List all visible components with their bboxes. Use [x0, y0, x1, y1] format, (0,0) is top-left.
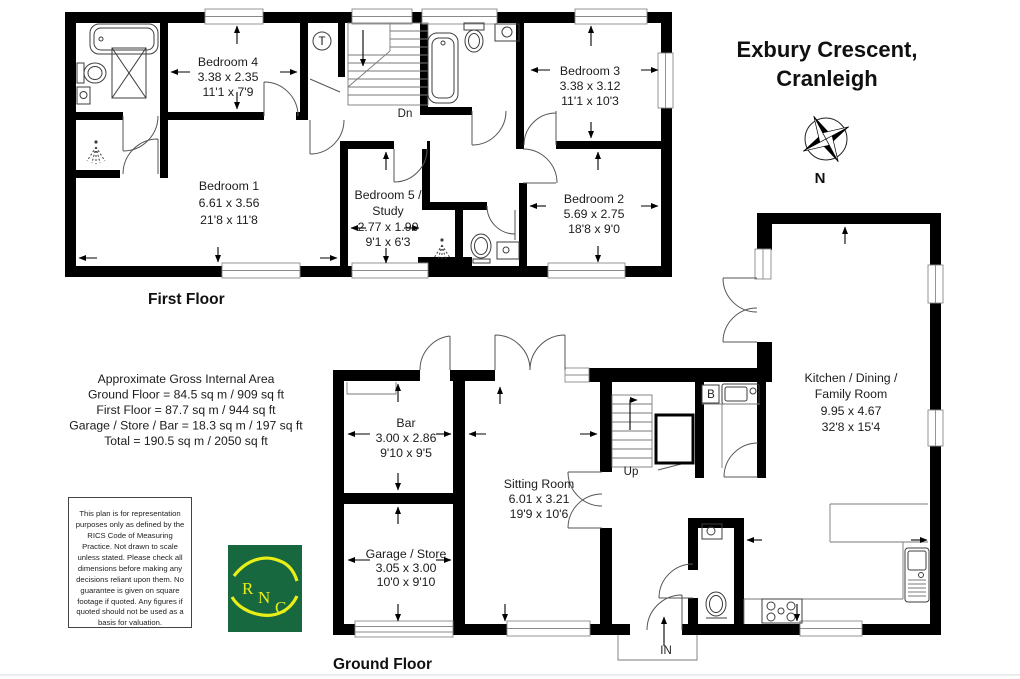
room-label-bedroom5-name1: Bedroom 5 / — [355, 188, 423, 202]
room-label-sitting-metric: 6.01 x 3.21 — [509, 492, 570, 506]
area-summary-ground: Ground Floor = 84.5 sq m / 909 sq ft — [88, 388, 285, 402]
ground-floor-plan: Bar 3.00 x 2.86 9'10 x 9'5 Garage / Stor… — [333, 213, 943, 673]
bath-icon — [90, 24, 158, 54]
area-summary-garage: Garage / Store / Bar = 18.3 sq m / 197 s… — [69, 419, 303, 433]
stairs-up-label: Up — [624, 466, 639, 478]
room-label-bar-imperial: 9'10 x 9'5 — [380, 446, 432, 460]
room-label-kitchen-name2: Family Room — [815, 387, 887, 401]
room-label-kitchen-metric: 9.95 x 4.67 — [821, 404, 882, 418]
understairs-cupboard — [656, 415, 693, 463]
ground-floor-doors — [420, 278, 758, 630]
hob-icon — [762, 599, 802, 623]
sink-icon — [495, 24, 519, 41]
shower-tray-icon — [112, 48, 146, 98]
stairs-down-label: Dn — [398, 108, 413, 120]
entrance-label: IN — [660, 645, 672, 657]
room-label-bedroom3-metric: 3.38 x 3.12 — [560, 79, 621, 93]
disclaimer-text: This plan is for representation purposes… — [76, 509, 185, 627]
room-label-bar-name: Bar — [396, 416, 415, 430]
toilet-icon — [77, 63, 106, 83]
bath-icon — [428, 33, 458, 103]
kitchen-sink-icon — [905, 548, 929, 602]
room-label-bedroom2-name: Bedroom 2 — [564, 192, 624, 206]
sink-icon — [497, 242, 519, 259]
room-label-kitchen-name1: Kitchen / Dining / — [805, 371, 899, 385]
room-label-bedroom2-metric: 5.69 x 2.75 — [564, 207, 625, 221]
stairs-up-icon — [612, 395, 652, 467]
shower-spray-icon — [87, 140, 105, 164]
room-label-bedroom3-name: Bedroom 3 — [560, 64, 620, 78]
first-floor-plan: Bedroom 4 3.38 x 2.35 11'1 x 7'9 Bedroom… — [65, 9, 673, 308]
first-floor-title: First Floor — [148, 291, 225, 308]
entrance-porch — [618, 635, 697, 660]
room-label-bedroom5-name2: Study — [372, 204, 404, 218]
room-label-bedroom4-name: Bedroom 4 — [198, 55, 258, 69]
toilet-icon — [471, 234, 491, 263]
floorplan-page: { "title": {"line1": "Exbury Crescent,",… — [0, 0, 1020, 679]
room-label-bedroom3-imperial: 11'1 x 10'3 — [561, 94, 619, 108]
agency-logo: R N C — [228, 545, 302, 632]
room-label-bedroom5-metric: 2.77 x 1.90 — [358, 220, 419, 234]
boiler-label: B — [707, 389, 715, 401]
sink-icon — [77, 87, 90, 104]
area-summary-heading: Approximate Gross Internal Area — [98, 372, 275, 386]
room-label-bedroom4-imperial: 11'1 x 7'9 — [203, 85, 254, 99]
compass-rose-icon: N — [791, 104, 861, 187]
toilet-icon — [464, 23, 484, 52]
area-summary: Approximate Gross Internal Area Ground F… — [69, 372, 303, 448]
room-label-bedroom1-metric: 6.61 x 3.56 — [199, 196, 260, 210]
page-title-line1: Exbury Crescent, — [737, 37, 918, 62]
ground-floor-windows — [355, 249, 943, 637]
area-summary-total: Total = 190.5 sq m / 2050 sq ft — [104, 434, 268, 448]
room-label-bedroom1-name: Bedroom 1 — [199, 179, 259, 193]
stairs-down-icon — [348, 23, 428, 105]
tank-label: T — [318, 36, 325, 48]
room-label-bedroom2-imperial: 18'8 x 9'0 — [568, 222, 620, 236]
room-label-garage-imperial: 10'0 x 9'10 — [377, 575, 436, 589]
room-label-garage-name: Garage / Store — [366, 547, 447, 561]
room-label-bedroom1-imperial: 21'8 x 11'8 — [200, 213, 258, 227]
page-title-line2: Cranleigh — [776, 66, 877, 91]
area-summary-first: First Floor = 87.7 sq m / 944 sq ft — [96, 403, 276, 417]
logo-letter-r: R — [242, 579, 254, 598]
room-label-sitting-imperial: 19'9 x 10'6 — [510, 507, 569, 521]
room-label-bedroom5-imperial: 9'1 x 6'3 — [365, 235, 410, 249]
compass-north-label: N — [815, 170, 826, 187]
ground-floor-title: Ground Floor — [333, 656, 432, 673]
room-label-sitting-name: Sitting Room — [504, 477, 574, 491]
room-label-bar-metric: 3.00 x 2.86 — [376, 431, 437, 445]
wc-toilet-icon — [706, 592, 727, 618]
room-label-kitchen-imperial: 32'8 x 15'4 — [822, 420, 881, 434]
room-label-garage-metric: 3.05 x 3.00 — [376, 561, 437, 575]
disclaimer-box: This plan is for representation purposes… — [68, 497, 192, 628]
room-label-bedroom4-metric: 3.38 x 2.35 — [198, 70, 259, 84]
logo-letter-c: C — [275, 598, 286, 617]
logo-letter-n: N — [258, 588, 270, 607]
